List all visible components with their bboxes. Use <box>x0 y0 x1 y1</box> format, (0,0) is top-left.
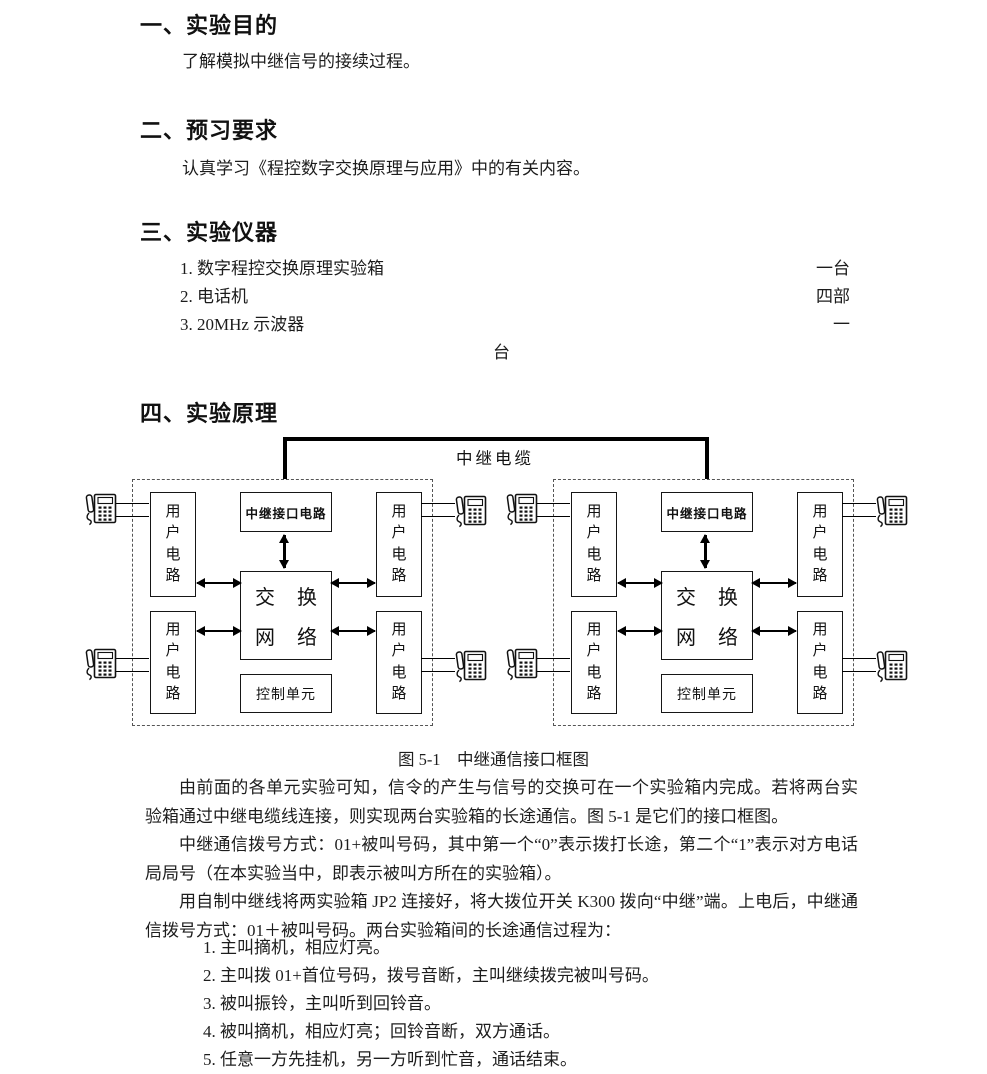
user-circuit-box: 用户电路 <box>571 611 617 714</box>
control-unit-box: 控制单元 <box>661 674 753 713</box>
instrument-row: 1. 数字程控交换原理实验箱 一台 <box>180 255 850 283</box>
subscriber-line <box>421 516 455 517</box>
user-circuit-label: 用户电路 <box>165 502 182 588</box>
switch-network-line2: 网 络 <box>676 621 738 650</box>
instrument-list: 1. 数字程控交换原理实验箱 一台 2. 电话机 四部 3. 20MHz 示波器… <box>180 255 850 339</box>
user-circuit-label: 用户电路 <box>391 620 408 706</box>
user-circuit-label: 用户电路 <box>812 502 829 588</box>
call-procedure-step: 3. 被叫振铃，主叫听到回铃音。 <box>203 990 858 1018</box>
telephone-icon <box>85 491 117 527</box>
telephone-icon <box>876 493 908 529</box>
trunk-interface-box: 中继接口电路 <box>661 492 753 532</box>
instrument-label: 3. 20MHz 示波器 <box>180 311 304 339</box>
instrument-row: 2. 电话机 四部 <box>180 283 850 311</box>
double-arrow-icon <box>331 582 375 585</box>
subscriber-line <box>421 671 455 672</box>
subscriber-line <box>421 658 455 659</box>
subscriber-line <box>115 671 149 672</box>
call-procedure-step: 5. 任意一方先挂机，另一方听到忙音，通话结束。 <box>203 1046 858 1074</box>
call-procedure-step: 4. 被叫摘机，相应灯亮；回铃音断，双方通话。 <box>203 1018 858 1046</box>
trunk-interface-box: 中继接口电路 <box>240 492 332 532</box>
instrument-count: 四部 <box>816 283 850 311</box>
experiment-box-left: 用户电路 用户电路 用户电路 用户电路 中继接口电路 交 换 网 络 控制单元 <box>132 479 433 726</box>
instrument-label: 1. 数字程控交换原理实验箱 <box>180 255 384 283</box>
subscriber-line <box>842 503 876 504</box>
switch-network-line2: 网 络 <box>255 621 317 650</box>
user-circuit-box: 用户电路 <box>376 611 422 714</box>
trunk-cable-line <box>283 437 709 441</box>
user-circuit-box: 用户电路 <box>797 492 843 597</box>
user-circuit-box: 用户电路 <box>150 492 196 597</box>
section2-heading: 二、预习要求 <box>140 113 278 145</box>
subscriber-line <box>842 658 876 659</box>
instrument-row: 3. 20MHz 示波器 一 <box>180 311 850 339</box>
user-circuit-label: 用户电路 <box>586 502 603 588</box>
telephone-icon <box>455 648 487 684</box>
telephone-icon <box>506 491 538 527</box>
switch-network-line1: 交 换 <box>676 581 738 610</box>
principle-text: 由前面的各单元实验可知，信令的产生与信号的交换可在一个实验箱内完成。若将两台实验… <box>145 774 858 1074</box>
double-arrow-icon <box>331 630 375 633</box>
user-circuit-box: 用户电路 <box>797 611 843 714</box>
instrument-label: 2. 电话机 <box>180 283 248 311</box>
double-arrow-icon <box>197 630 241 633</box>
section1-heading: 一、实验目的 <box>140 8 278 40</box>
control-unit-box: 控制单元 <box>240 674 332 713</box>
experiment-box-right: 用户电路 用户电路 用户电路 用户电路 中继接口电路 交 换 网 络 控制单元 <box>553 479 854 726</box>
telephone-icon <box>455 493 487 529</box>
double-arrow-icon <box>283 535 286 568</box>
section4-heading: 四、实验原理 <box>140 396 278 428</box>
double-arrow-icon <box>197 582 241 585</box>
user-circuit-label: 用户电路 <box>812 620 829 706</box>
user-circuit-label: 用户电路 <box>165 620 182 706</box>
subscriber-line <box>421 503 455 504</box>
user-circuit-label: 用户电路 <box>391 502 408 588</box>
user-circuit-label: 用户电路 <box>586 620 603 706</box>
double-arrow-icon <box>752 630 796 633</box>
subscriber-line <box>536 503 570 504</box>
instrument-count-overflow: 台 <box>145 338 858 363</box>
telephone-icon <box>876 648 908 684</box>
user-circuit-box: 用户电路 <box>150 611 196 714</box>
call-procedure-step: 2. 主叫拨 01+首位号码，拨号音断，主叫继续拨完被叫号码。 <box>203 962 858 990</box>
document-page: { "doc": { "section1": { "heading": "一、实… <box>0 0 987 1052</box>
subscriber-line <box>115 503 149 504</box>
section3-heading: 三、实验仪器 <box>140 215 278 247</box>
instrument-count: 一 <box>833 311 850 339</box>
instrument-count: 一台 <box>816 255 850 283</box>
principle-paragraph: 中继通信拨号方式：01+被叫号码，其中第一个“0”表示拨打长途，第二个“1”表示… <box>145 831 858 888</box>
subscriber-line <box>842 516 876 517</box>
figure-caption: 图 5-1 中继通信接口框图 <box>0 746 987 770</box>
principle-paragraph: 由前面的各单元实验可知，信令的产生与信号的交换可在一个实验箱内完成。若将两台实验… <box>145 774 858 831</box>
call-procedure-list: 1. 主叫摘机，相应灯亮。 2. 主叫拨 01+首位号码，拨号音断，主叫继续拨完… <box>145 934 858 1074</box>
subscriber-line <box>115 516 149 517</box>
user-circuit-box: 用户电路 <box>571 492 617 597</box>
trunk-interface-diagram: 中继电缆 用户电路 用户电路 用户电路 用户电路 中继接口电路 交 换 网 络 … <box>0 430 987 742</box>
double-arrow-icon <box>752 582 796 585</box>
double-arrow-icon <box>704 535 707 568</box>
switch-network-box: 交 换 网 络 <box>661 571 753 660</box>
subscriber-line <box>536 516 570 517</box>
section2-body: 认真学习《程控数字交换原理与应用》中的有关内容。 <box>182 154 590 179</box>
subscriber-line <box>536 671 570 672</box>
subscriber-line <box>115 658 149 659</box>
double-arrow-icon <box>618 630 662 633</box>
user-circuit-box: 用户电路 <box>376 492 422 597</box>
section1-body: 了解模拟中继信号的接续过程。 <box>182 47 420 72</box>
switch-network-box: 交 换 网 络 <box>240 571 332 660</box>
switch-network-line1: 交 换 <box>255 581 317 610</box>
telephone-icon <box>506 646 538 682</box>
trunk-cable-label: 中继电缆 <box>410 445 580 469</box>
telephone-icon <box>85 646 117 682</box>
subscriber-line <box>536 658 570 659</box>
double-arrow-icon <box>618 582 662 585</box>
subscriber-line <box>842 671 876 672</box>
